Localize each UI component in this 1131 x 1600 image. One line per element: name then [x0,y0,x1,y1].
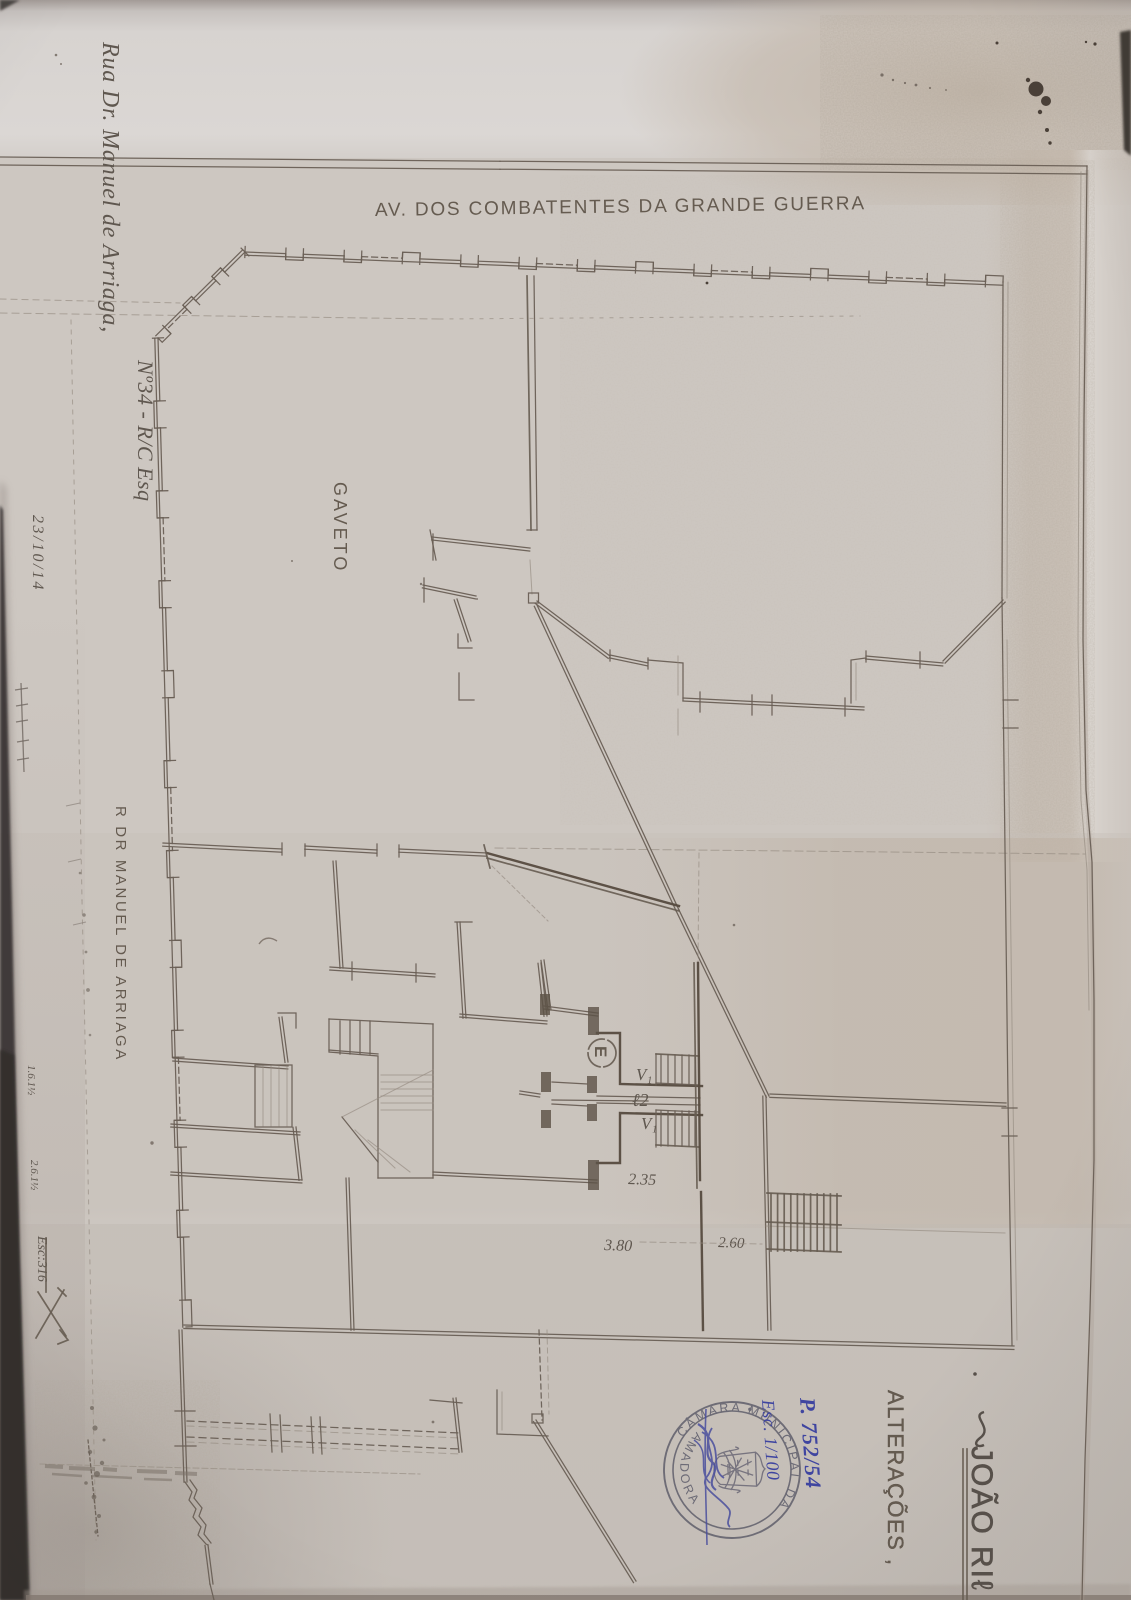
svg-text:1.6.1½: 1.6.1½ [25,1065,37,1095]
svg-text:V₁: V₁ [641,1114,657,1133]
svg-text:2.6.1½: 2.6.1½ [28,1160,40,1190]
svg-text:2.35: 2.35 [628,1171,657,1189]
svg-text:ℓ2: ℓ2 [632,1090,649,1110]
svg-text:R DR MANUEL DE ARRIAGA: R DR MANUEL DE ARRIAGA [112,806,129,1062]
svg-text:E: E [591,1046,610,1057]
svg-text:23/10/14: 23/10/14 [29,515,46,592]
svg-text:GAVETO: GAVETO [330,482,350,573]
svg-text:3.80: 3.80 [603,1237,633,1255]
svg-text:ALTERAÇÕES ,: ALTERAÇÕES , [883,1390,908,1567]
svg-text:JOÃO RIℓ: JOÃO RIℓ [965,1446,999,1592]
svg-text:V₁: V₁ [636,1065,652,1084]
svg-text:Nº34 - R/C Esq: Nº34 - R/C Esq [133,359,158,502]
svg-text:Rua Dr. Manuel de Arriaga,: Rua Dr. Manuel de Arriaga, [97,41,123,333]
